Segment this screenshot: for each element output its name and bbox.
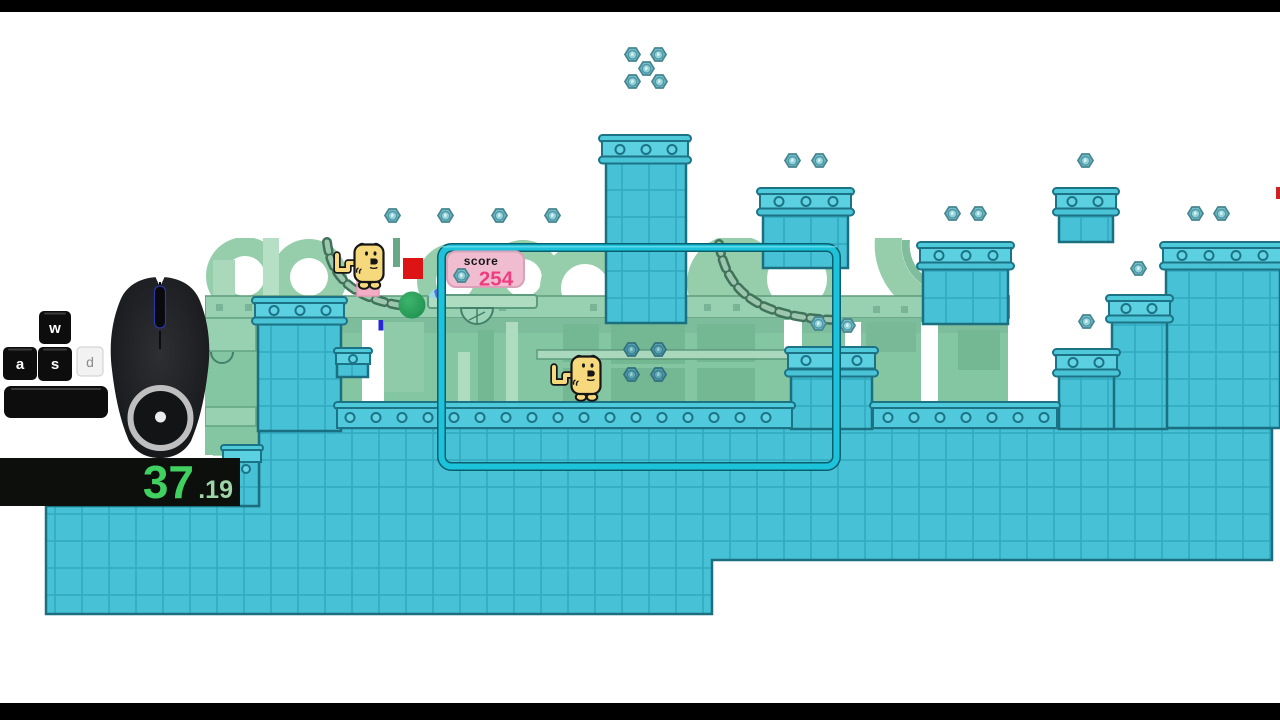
svg-text:a: a <box>16 356 25 373</box>
svg-text:s: s <box>51 356 59 373</box>
svg-text:.19: .19 <box>198 476 233 504</box>
svg-text:254: 254 <box>479 268 514 291</box>
svg-text:score: score <box>464 254 499 268</box>
svg-text:w: w <box>48 320 61 337</box>
svg-text:37: 37 <box>143 456 194 508</box>
svg-text:d: d <box>86 354 94 370</box>
